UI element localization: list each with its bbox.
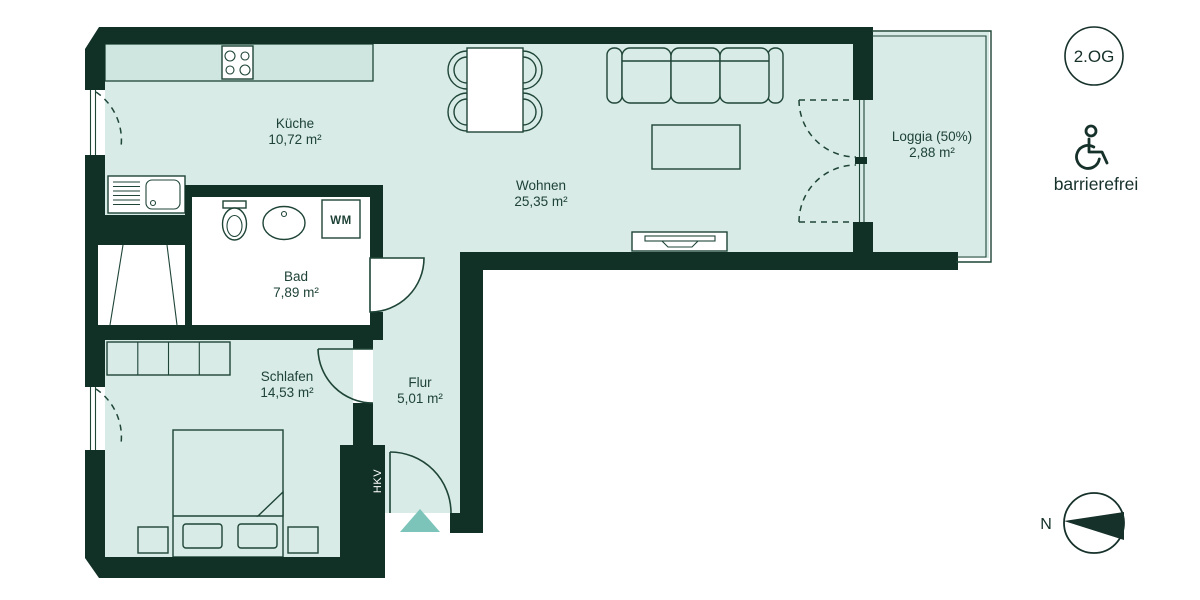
nightstand — [288, 527, 318, 553]
tv-sideboard — [632, 232, 727, 251]
wheelchair-icon — [1076, 126, 1107, 168]
kitchen-counter — [105, 44, 373, 81]
washing-machine: WM — [322, 200, 360, 238]
wheelchair-head — [1086, 126, 1096, 136]
toilet — [223, 201, 247, 240]
room-label-wohnen: Wohnen — [516, 178, 566, 193]
hallway-floor — [373, 195, 460, 513]
sofa-armrest — [607, 48, 622, 103]
dining-table — [467, 48, 523, 132]
sofa-armrest — [768, 48, 783, 103]
coffee-table — [652, 125, 740, 169]
room-label-schlafen: Schlafen — [261, 369, 314, 384]
nightstand — [138, 527, 168, 553]
room-area-loggia: 2,88 m² — [909, 145, 955, 160]
floorplan-page: WM — [0, 0, 1200, 600]
sofa-cushion — [671, 48, 720, 103]
compass: N — [1040, 493, 1124, 553]
washing-machine-label: WM — [330, 215, 351, 227]
hkv-shaft-label: HKV — [372, 469, 384, 493]
wash-basin — [263, 207, 305, 240]
kitchen-sink-unit — [108, 176, 185, 213]
sofa-cushion — [720, 48, 769, 103]
bed — [173, 430, 283, 557]
room-label-bad: Bad — [284, 269, 308, 284]
sofa-cushion — [622, 48, 671, 103]
floor-level-badge: 2.OG — [1065, 27, 1123, 85]
room-label-flur: Flur — [408, 375, 432, 390]
sofa — [607, 48, 783, 103]
door-mullion — [855, 157, 867, 164]
room-area-flur: 5,01 m² — [397, 391, 443, 406]
toilet-cistern — [223, 201, 246, 208]
accessibility-annotation: barrierefrei — [1054, 126, 1139, 194]
pillow — [238, 524, 277, 548]
accessibility-label: barrierefrei — [1054, 174, 1139, 194]
floorplan-drawing: WM — [0, 0, 1200, 600]
toilet-bowl — [223, 208, 247, 240]
room-area-schlafen: 14,53 m² — [260, 385, 314, 400]
pillow — [183, 524, 222, 548]
room-label-kueche: Küche — [276, 116, 314, 131]
room-label-loggia: Loggia (50%) — [892, 129, 972, 144]
room-area-wohnen: 25,35 m² — [514, 194, 568, 209]
room-area-bad: 7,89 m² — [273, 285, 319, 300]
room-area-kueche: 10,72 m² — [268, 132, 322, 147]
north-label: N — [1040, 516, 1052, 533]
wardrobe — [107, 342, 230, 375]
floor-level-text: 2.OG — [1074, 47, 1115, 66]
